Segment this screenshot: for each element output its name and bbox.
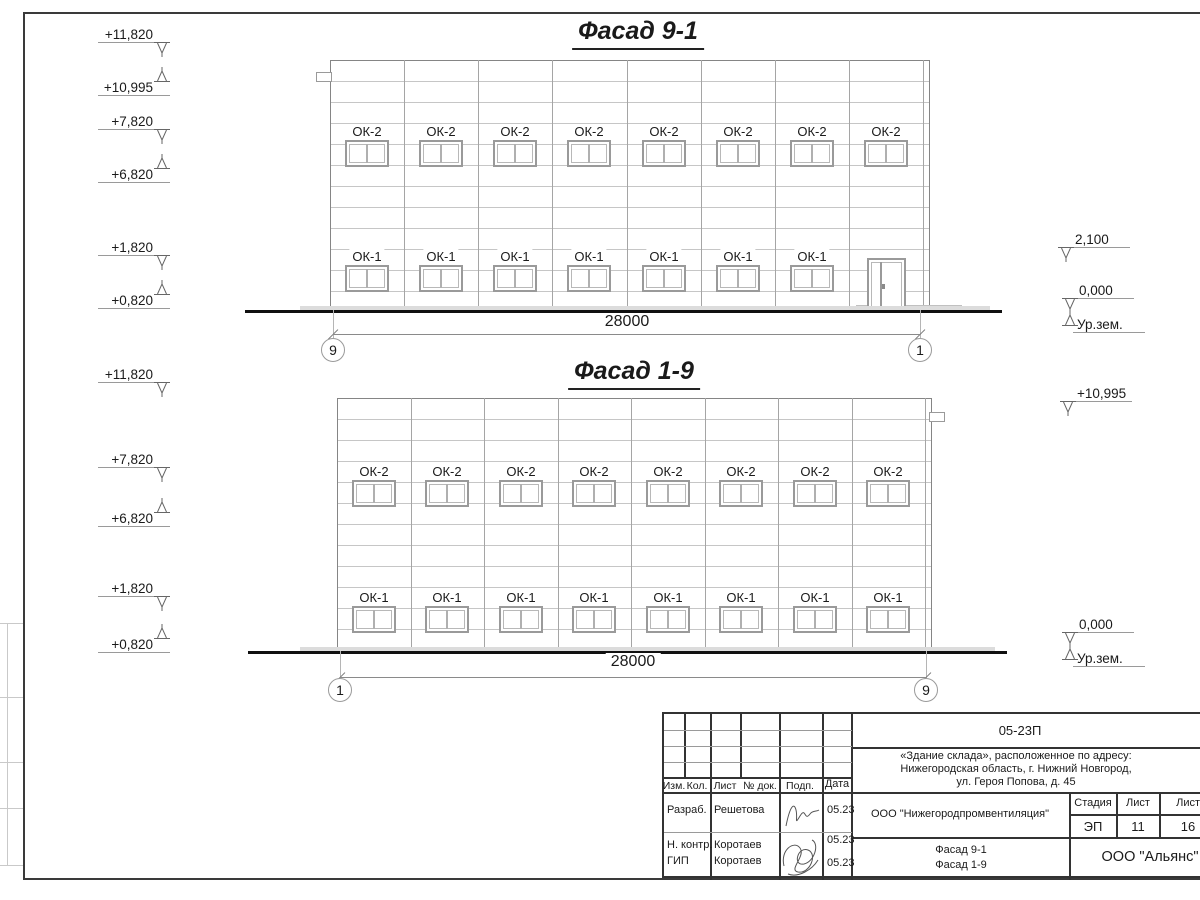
corner-trim-line <box>923 60 924 310</box>
bay-grid-line <box>849 60 850 310</box>
window-mullion <box>440 269 442 288</box>
window <box>864 140 908 167</box>
bay-grid-line <box>558 398 559 651</box>
window <box>419 140 463 167</box>
window-label: ОК-2 <box>720 124 755 139</box>
tb-address-line: «Здание склада», расположенное по адресу… <box>900 750 1131 762</box>
window-mullion <box>814 484 816 503</box>
window-mullion <box>366 144 368 163</box>
window-label: ОК-1 <box>349 249 384 264</box>
window-mullion <box>667 484 669 503</box>
frame-top <box>23 12 1200 14</box>
axis-bubble: 1 <box>908 338 932 362</box>
elevation-mark: +0,820 <box>98 293 170 309</box>
window-label: ОК-1 <box>797 590 832 605</box>
elevation-value: +1,820 <box>111 240 153 255</box>
window <box>646 480 690 507</box>
window-label: ОК-1 <box>646 249 681 264</box>
door-handle <box>882 284 885 289</box>
frame-bottom <box>23 878 1200 880</box>
bay-grid-line <box>631 398 632 651</box>
elevation-value: +10,995 <box>1077 386 1126 401</box>
tb-col-data: Дата <box>825 778 849 790</box>
dimension-value: 28000 <box>600 313 655 331</box>
window-mullion <box>514 269 516 288</box>
window-mullion <box>446 484 448 503</box>
window-mullion <box>446 610 448 629</box>
side-stamp-line <box>0 808 23 809</box>
elevation-arrow-icon <box>154 42 170 57</box>
window <box>345 265 389 292</box>
window-mullion <box>366 269 368 288</box>
elevation-arrow-icon <box>154 129 170 144</box>
tb-col-doc: № док. <box>743 780 777 792</box>
elevation-mark: +7,820 <box>98 452 170 468</box>
facade-title: Фасад 9-1 <box>572 17 704 50</box>
elevation-value: +6,820 <box>111 511 153 526</box>
side-stamp-line <box>7 623 8 865</box>
window-label: ОК-2 <box>870 464 905 479</box>
elevation-mark: +1,820 <box>98 240 170 256</box>
window-mullion <box>588 144 590 163</box>
window-mullion <box>885 144 887 163</box>
elevation-value: 0,000 <box>1079 617 1113 632</box>
axis-bubble: 9 <box>914 678 938 702</box>
window-label: ОК-2 <box>723 464 758 479</box>
window <box>572 606 616 633</box>
window <box>642 140 686 167</box>
elevation-arrow-icon <box>154 280 170 295</box>
window <box>425 480 469 507</box>
window-label: ОК-1 <box>571 249 606 264</box>
window <box>866 480 910 507</box>
facade-title: Фасад 1-9 <box>568 357 700 390</box>
tb-col-list: Лист <box>714 780 737 792</box>
frame-left <box>23 12 25 880</box>
tb-role: Н. контр. <box>667 839 712 851</box>
tb-col-izm: Изм. <box>663 780 686 792</box>
tb-date: 05.23 <box>827 857 855 869</box>
elevation-arrow-icon <box>154 67 170 82</box>
elevation-value: 2,100 <box>1075 232 1109 247</box>
window-label: ОК-2 <box>503 464 538 479</box>
window <box>352 480 396 507</box>
window <box>790 140 834 167</box>
bay-grid-line <box>852 398 853 651</box>
corner-trim-line <box>925 398 926 651</box>
window-mullion <box>667 610 669 629</box>
elevation-mark: +11,820 <box>98 27 170 43</box>
tb-sheet-value: 11 <box>1131 819 1145 834</box>
window <box>425 606 469 633</box>
window-label: ОК-2 <box>576 464 611 479</box>
window-label: ОК-2 <box>571 124 606 139</box>
window-mullion <box>514 144 516 163</box>
window <box>793 606 837 633</box>
axis-leader-line <box>926 651 927 678</box>
window-label: ОК-1 <box>503 590 538 605</box>
tb-sheets-value: 16 <box>1181 819 1195 834</box>
tb-name: Решетова <box>714 804 764 816</box>
elevation-arrow-icon <box>154 154 170 169</box>
window-label: ОК-1 <box>794 249 829 264</box>
window-mullion <box>737 144 739 163</box>
bay-grid-line <box>552 60 553 310</box>
elevation-mark: +0,820 <box>98 637 170 653</box>
window-mullion <box>663 144 665 163</box>
bay-grid-line <box>411 398 412 651</box>
window-mullion <box>373 610 375 629</box>
elevation-value: +6,820 <box>111 167 153 182</box>
elevation-mark: +11,820 <box>98 367 170 383</box>
tb-stage-value: ЭП <box>1084 819 1103 834</box>
window-label: ОК-1 <box>576 590 611 605</box>
elevation-mark: Ур.зем. <box>1073 317 1145 333</box>
tb-stage-label: Стадия <box>1074 797 1112 809</box>
window <box>419 265 463 292</box>
window-label: ОК-1 <box>723 590 758 605</box>
elevation-mark: 0,000 <box>1062 283 1134 299</box>
tb-company: ООО "Альянс" <box>1102 849 1199 865</box>
window <box>493 265 537 292</box>
bay-grid-line <box>778 398 779 651</box>
elevation-value: Ур.зем. <box>1077 317 1123 332</box>
window <box>716 265 760 292</box>
tb-name: Коротаев <box>714 855 762 867</box>
window-label: ОК-2 <box>868 124 903 139</box>
window-mullion <box>811 269 813 288</box>
window-mullion <box>740 484 742 503</box>
gutter-outlet <box>929 412 945 422</box>
elevation-arrow-icon <box>1058 247 1074 262</box>
gutter-outlet <box>316 72 332 82</box>
tb-role: ГИП <box>667 855 689 867</box>
elevation-mark: Ур.зем. <box>1073 651 1145 667</box>
window <box>352 606 396 633</box>
bay-grid-line <box>478 60 479 310</box>
axis-bubble: 1 <box>328 678 352 702</box>
entrance-door <box>867 258 906 308</box>
elevation-value: +7,820 <box>111 452 153 467</box>
window-mullion <box>737 269 739 288</box>
elevation-mark: +6,820 <box>98 511 170 527</box>
window <box>567 265 611 292</box>
elevation-value: +0,820 <box>111 293 153 308</box>
side-stamp-line <box>0 697 23 698</box>
title-block: Изм. Кол. Лист № док. Подп. Дата Разраб.… <box>662 712 1200 878</box>
bay-grid-line <box>627 60 628 310</box>
window <box>719 606 763 633</box>
bay-grid-line <box>705 398 706 651</box>
window-mullion <box>887 610 889 629</box>
elevation-arrow-icon <box>154 255 170 270</box>
elevation-value: +10,995 <box>104 80 153 95</box>
window <box>866 606 910 633</box>
window-label: ОК-1 <box>497 249 532 264</box>
tb-sheet-label: Лист <box>1126 797 1150 809</box>
elevation-arrow-icon <box>1060 401 1076 416</box>
window-mullion <box>740 610 742 629</box>
window <box>793 480 837 507</box>
window-mullion <box>440 144 442 163</box>
window-mullion <box>887 484 889 503</box>
window-mullion <box>373 484 375 503</box>
window-label: ОК-2 <box>797 464 832 479</box>
elevation-mark: +10,995 <box>98 80 170 96</box>
axis-leader-line <box>340 651 341 678</box>
tb-sheets-label: Листов <box>1176 797 1200 809</box>
elevation-mark: 0,000 <box>1062 617 1134 633</box>
window-label: ОК-2 <box>423 124 458 139</box>
window-label: ОК-2 <box>646 124 681 139</box>
tb-role: Разраб. <box>667 804 707 816</box>
tb-drawing-title: Фасад 9-1 <box>935 844 986 856</box>
window-mullion <box>520 484 522 503</box>
window <box>716 140 760 167</box>
window <box>345 140 389 167</box>
elevation-arrow-icon <box>154 467 170 482</box>
window-mullion <box>520 610 522 629</box>
window-mullion <box>814 610 816 629</box>
elevation-value: Ур.зем. <box>1077 651 1123 666</box>
tb-org: ООО "Нижегородпромвентиляция" <box>871 808 1049 820</box>
tb-project-code: 05-23П <box>999 723 1042 738</box>
axis-bubble: 9 <box>321 338 345 362</box>
bay-grid-line <box>775 60 776 310</box>
window-label: ОК-1 <box>720 249 755 264</box>
tb-col-podp: Подп. <box>786 780 814 792</box>
window <box>567 140 611 167</box>
elevation-mark: +6,820 <box>98 167 170 183</box>
window-label: ОК-1 <box>650 590 685 605</box>
side-stamp-line <box>0 762 23 763</box>
dimension-line <box>340 677 926 678</box>
bay-grid-line <box>701 60 702 310</box>
elevation-mark: +1,820 <box>98 581 170 597</box>
elevation-arrow-icon <box>154 382 170 397</box>
tb-address-line: Нижегородская область, г. Нижний Новгоро… <box>900 763 1131 775</box>
signature <box>778 826 824 878</box>
side-stamp-line <box>0 623 23 624</box>
tb-col-kol: Кол. <box>687 780 708 792</box>
elevation-value: +0,820 <box>111 637 153 652</box>
elevation-value: +7,820 <box>111 114 153 129</box>
elevation-arrow-icon <box>154 596 170 611</box>
window <box>642 265 686 292</box>
tb-drawing-title: Фасад 1-9 <box>935 859 986 871</box>
window-label: ОК-2 <box>429 464 464 479</box>
elevation-mark: 2,100 <box>1058 232 1130 248</box>
window-label: ОК-1 <box>356 590 391 605</box>
tb-date: 05.23 <box>827 804 855 816</box>
tb-name: Коротаев <box>714 839 762 851</box>
window <box>719 480 763 507</box>
tb-address-line: ул. Героя Попова, д. 45 <box>956 776 1075 788</box>
window-mullion <box>663 269 665 288</box>
elevation-value: 0,000 <box>1079 283 1113 298</box>
elevation-arrow-icon <box>154 498 170 513</box>
window-mullion <box>593 484 595 503</box>
drawing-sheet: Фасад 9-1ОК-2ОК-2ОК-2ОК-2ОК-2ОК-2ОК-2ОК-… <box>0 0 1200 900</box>
dimension-line <box>333 334 920 335</box>
window-label: ОК-1 <box>423 249 458 264</box>
elevation-mark: +10,995 <box>1060 386 1132 402</box>
dimension-value: 28000 <box>606 653 661 671</box>
elevation-value: +11,820 <box>105 367 153 382</box>
window-label: ОК-2 <box>794 124 829 139</box>
window-mullion <box>811 144 813 163</box>
elevation-mark: +7,820 <box>98 114 170 130</box>
window-label: ОК-1 <box>429 590 464 605</box>
window <box>790 265 834 292</box>
window-label: ОК-2 <box>349 124 384 139</box>
elevation-value: +1,820 <box>111 581 153 596</box>
window <box>646 606 690 633</box>
window <box>499 480 543 507</box>
window <box>493 140 537 167</box>
elevation-arrow-icon <box>154 624 170 639</box>
window-label: ОК-2 <box>650 464 685 479</box>
window <box>572 480 616 507</box>
bay-grid-line <box>404 60 405 310</box>
window-label: ОК-1 <box>870 590 905 605</box>
elevation-value: +11,820 <box>105 27 153 42</box>
window-mullion <box>593 610 595 629</box>
window-label: ОК-2 <box>356 464 391 479</box>
side-stamp-line <box>0 865 23 866</box>
door-frame <box>871 262 902 306</box>
window <box>499 606 543 633</box>
window-mullion <box>588 269 590 288</box>
tb-date: 05.23 <box>827 834 855 846</box>
bay-grid-line <box>484 398 485 651</box>
window-label: ОК-2 <box>497 124 532 139</box>
